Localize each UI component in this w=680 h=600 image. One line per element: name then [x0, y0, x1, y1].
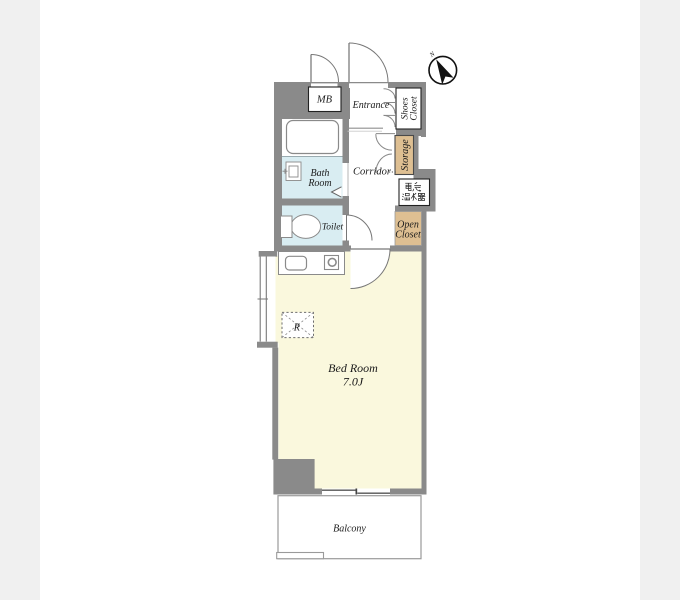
svg-text:R: R	[293, 323, 300, 334]
svg-text:Closet: Closet	[410, 96, 420, 121]
svg-text:Room: Room	[307, 178, 331, 189]
svg-text:Balcony: Balcony	[333, 524, 366, 535]
svg-text:Bed Room: Bed Room	[328, 361, 378, 375]
svg-text:Closet: Closet	[395, 230, 421, 241]
svg-text:MB: MB	[316, 95, 333, 106]
svg-text:Entrance: Entrance	[352, 100, 390, 111]
svg-text:Toilet: Toilet	[322, 223, 344, 233]
svg-text:Corridor: Corridor	[353, 167, 392, 178]
svg-text:7.0J: 7.0J	[343, 375, 364, 389]
svg-text:Storage: Storage	[400, 139, 411, 171]
